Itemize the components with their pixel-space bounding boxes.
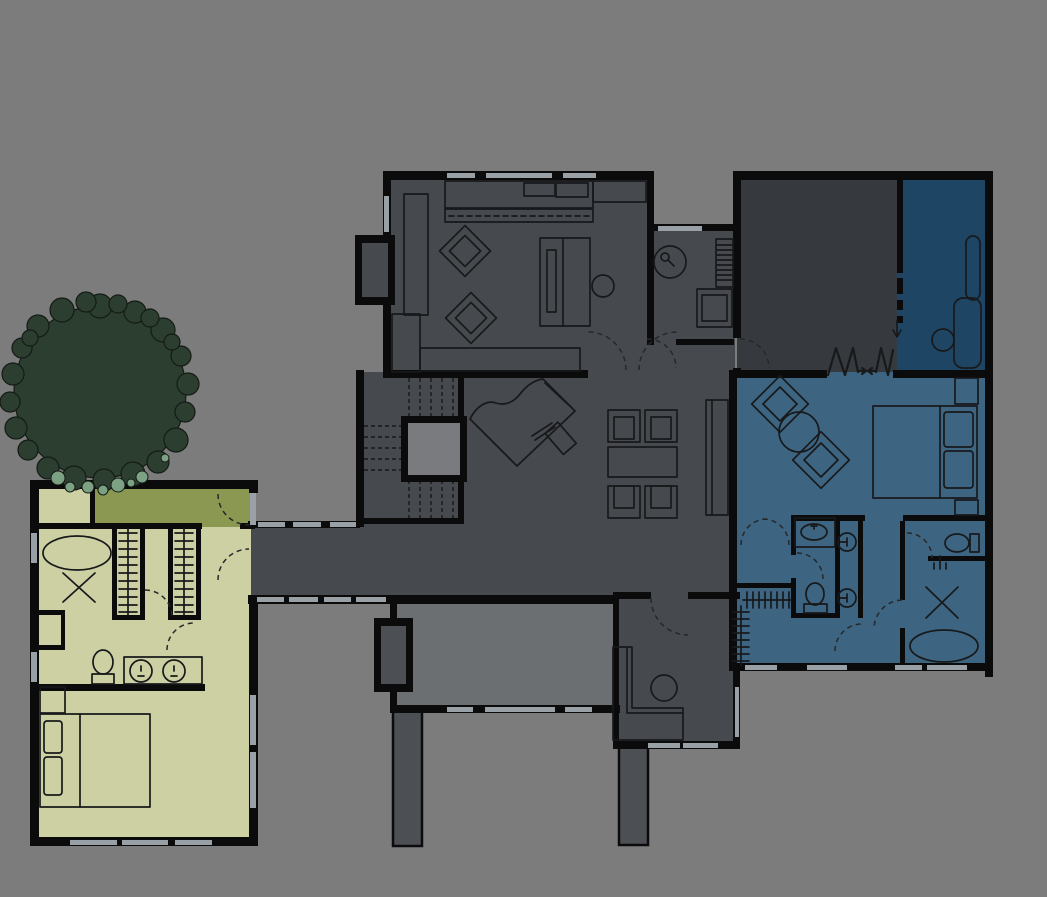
wing-deck-floor [95, 489, 250, 527]
east-pier [619, 744, 648, 845]
shaft-opening [408, 423, 460, 475]
west-pier [393, 710, 422, 846]
floor-plan-canvas [0, 0, 1047, 897]
south-deck-floor [392, 600, 614, 708]
tall-room-floor [737, 180, 903, 372]
corridor-floor [249, 521, 395, 601]
floor-plan-stage [0, 0, 1047, 897]
flex-room-floor [897, 178, 985, 372]
shaft [401, 416, 467, 482]
